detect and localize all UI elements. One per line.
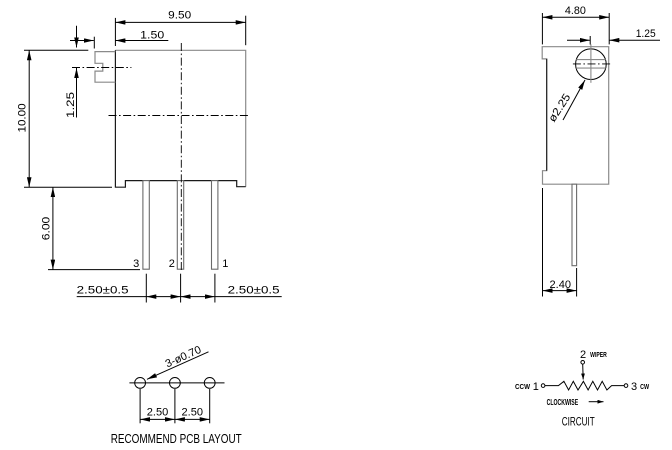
svg-text:WIPER: WIPER	[590, 352, 607, 359]
svg-text:1: 1	[222, 258, 228, 270]
svg-text:6.00: 6.00	[40, 217, 52, 241]
svg-text:1.25: 1.25	[65, 92, 77, 118]
svg-text:CLOCKWISE: CLOCKWISE	[547, 398, 579, 407]
svg-text:CIRCUIT: CIRCUIT	[562, 414, 595, 428]
svg-text:1.50: 1.50	[140, 30, 164, 42]
svg-text:2.50: 2.50	[182, 407, 204, 419]
svg-text:CCW: CCW	[515, 384, 530, 391]
svg-text:CW: CW	[640, 384, 649, 391]
svg-text:3-ø0.70: 3-ø0.70	[164, 344, 204, 370]
svg-text:RECOMMEND PCB LAYOUT: RECOMMEND PCB LAYOUT	[111, 431, 242, 446]
svg-text:2: 2	[169, 258, 175, 270]
svg-text:2.50: 2.50	[147, 407, 169, 419]
svg-text:9.50: 9.50	[168, 10, 191, 22]
svg-text:3: 3	[631, 381, 637, 393]
svg-text:4.80: 4.80	[565, 5, 586, 17]
svg-text:10.00: 10.00	[16, 104, 28, 133]
svg-text:3: 3	[133, 258, 139, 270]
svg-text:2.50±0.5: 2.50±0.5	[228, 284, 280, 296]
svg-text:1.25: 1.25	[636, 28, 656, 40]
svg-text:2.50±0.5: 2.50±0.5	[77, 284, 129, 296]
svg-text:1: 1	[533, 381, 539, 393]
svg-text:2: 2	[580, 349, 586, 361]
svg-text:2.40: 2.40	[550, 279, 572, 291]
